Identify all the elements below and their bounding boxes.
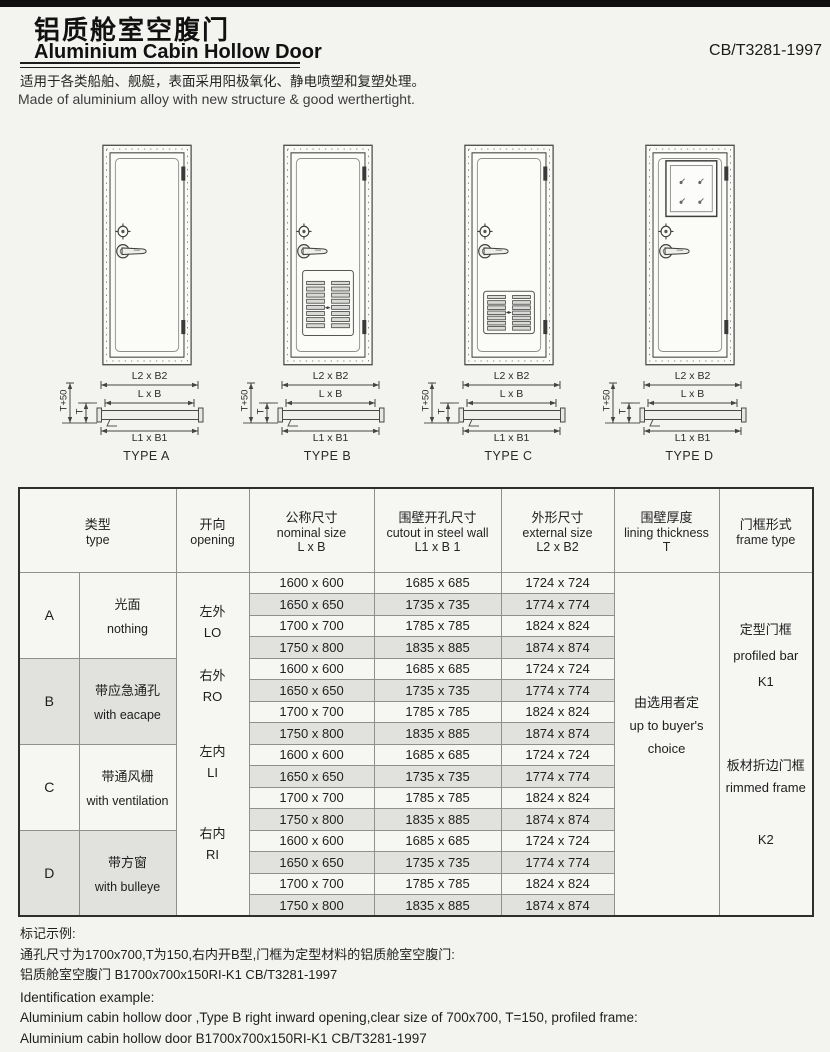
dim-label-t: T [75, 404, 86, 420]
dim-label-t: T [618, 404, 629, 420]
cutout-cell: 1685 x 685 [374, 744, 501, 766]
external-cell: 1724 x 724 [501, 744, 614, 766]
square-window-icon [666, 161, 717, 217]
top-rule-bar [0, 0, 830, 7]
dimension-diagram-a: L2 x B2 L x B L1 x B1 T+50 T [56, 373, 236, 445]
door-diagram-b [279, 142, 377, 368]
cutout-cell: 1735 x 735 [374, 594, 501, 616]
external-cell: 1724 x 724 [501, 830, 614, 852]
nominal-cell: 1700 x 700 [249, 701, 374, 723]
page-title-en: Aluminium Cabin Hollow Door [34, 41, 322, 64]
dim-label-nominal: L x B [101, 388, 198, 400]
external-cell: 1874 x 874 [501, 723, 614, 745]
desc-cell-d: 带方窗 with bulleye [79, 830, 176, 916]
nominal-cell: 1650 x 650 [249, 852, 374, 874]
figure-type-c: L2 x B2 L x B L1 x B1 T+50 T TYPE C [418, 142, 599, 463]
nominal-cell: 1650 x 650 [249, 594, 374, 616]
external-cell: 1774 x 774 [501, 680, 614, 702]
lining-cell: 由选用者定 up to buyer's choice [614, 572, 719, 916]
col-header-nominal: 公称尺寸 nominal size L x B [249, 488, 374, 572]
cutout-cell: 1685 x 685 [374, 572, 501, 594]
nominal-cell: 1650 x 650 [249, 766, 374, 788]
dim-label-t50: T+50 [421, 381, 432, 421]
mark-line-en-2: Aluminium cabin hollow door B1700x700x15… [20, 1029, 638, 1050]
door-diagram-c [460, 142, 558, 368]
nominal-cell: 1750 x 800 [249, 723, 374, 745]
col-header-cutout: 围壁开孔尺寸 cutout in steel wall L1 x B 1 [374, 488, 501, 572]
catalog-page: 铝质舱室空腹门 Aluminium Cabin Hollow Door CB/T… [0, 0, 830, 1052]
external-cell: 1874 x 874 [501, 809, 614, 831]
type-b-label: TYPE B [237, 449, 418, 463]
dim-label-nominal: L x B [644, 388, 741, 400]
opening-ro: 右外 RO [177, 665, 249, 707]
type-d-label: TYPE D [599, 449, 780, 463]
dim-label-cutout: L1 x B1 [644, 432, 741, 444]
nominal-cell: 1700 x 700 [249, 787, 374, 809]
standard-number: CB/T3281-1997 [709, 42, 822, 60]
dim-label-cutout: L1 x B1 [463, 432, 560, 444]
dim-label-external: L2 x B2 [644, 370, 741, 382]
dim-label-t50: T+50 [240, 381, 251, 421]
mark-line-zh-2: 铝质舱室空腹门 B1700x700x150RI-K1 CB/T3281-1997 [20, 965, 638, 986]
external-cell: 1824 x 824 [501, 787, 614, 809]
description-en: Made of aluminium alloy with new structu… [18, 91, 415, 107]
mark-line-zh-1: 通孔尺寸为1700x700,T为150,右内开B型,门框为定型材料的铝质舱室空腹… [20, 945, 638, 966]
external-cell: 1824 x 824 [501, 873, 614, 895]
nominal-cell: 1750 x 800 [249, 895, 374, 917]
external-cell: 1874 x 874 [501, 895, 614, 917]
door-figures: L2 x B2 L x B L1 x B1 T+50 T TYPE A L2 x… [56, 142, 780, 463]
type-c-label: TYPE C [418, 449, 599, 463]
mark-title-en: Identification example: [20, 988, 638, 1009]
cutout-cell: 1785 x 785 [374, 615, 501, 637]
external-cell: 1774 x 774 [501, 852, 614, 874]
mark-line-en-1: Aluminium cabin hollow door ,Type B righ… [20, 1008, 638, 1029]
cutout-cell: 1735 x 735 [374, 766, 501, 788]
dim-label-cutout: L1 x B1 [282, 432, 379, 444]
external-cell: 1774 x 774 [501, 766, 614, 788]
dim-label-external: L2 x B2 [101, 370, 198, 382]
external-cell: 1774 x 774 [501, 594, 614, 616]
nominal-cell: 1600 x 600 [249, 830, 374, 852]
external-cell: 1724 x 724 [501, 572, 614, 594]
nominal-cell: 1650 x 650 [249, 680, 374, 702]
type-cell-d: D [19, 830, 79, 916]
cutout-cell: 1785 x 785 [374, 701, 501, 723]
door-diagram-d [641, 142, 739, 368]
type-cell-b: B [19, 658, 79, 744]
cutout-cell: 1685 x 685 [374, 830, 501, 852]
dimension-diagram-d: L2 x B2 L x B L1 x B1 T+50 T [599, 373, 779, 445]
cutout-cell: 1835 x 885 [374, 723, 501, 745]
cutout-cell: 1685 x 685 [374, 658, 501, 680]
nominal-cell: 1750 x 800 [249, 637, 374, 659]
title-underline [20, 62, 300, 68]
desc-cell-a: 光面 nothing [79, 572, 176, 658]
nominal-cell: 1600 x 600 [249, 744, 374, 766]
header-row: 类型 type 开向 opening 公称尺寸 nominal size L x… [19, 488, 813, 572]
door-base-drawing [103, 145, 191, 364]
desc-cell-b: 带应急通孔 with eacape [79, 658, 176, 744]
type-cell-c: C [19, 744, 79, 830]
nominal-cell: 1750 x 800 [249, 809, 374, 831]
dim-label-nominal: L x B [463, 388, 560, 400]
cutout-cell: 1785 x 785 [374, 873, 501, 895]
external-cell: 1824 x 824 [501, 701, 614, 723]
col-header-external: 外形尺寸 external size L2 x B2 [501, 488, 614, 572]
dim-label-t: T [256, 404, 267, 420]
door-base-drawing [465, 145, 553, 364]
figure-type-d: L2 x B2 L x B L1 x B1 T+50 T TYPE D [599, 142, 780, 463]
col-header-lining: 围壁厚度 lining thickness T [614, 488, 719, 572]
frame-k2: 板材折边门框 rimmed frame K2 [720, 755, 813, 851]
cutout-cell: 1835 x 885 [374, 895, 501, 917]
frame-k1: 定型门框 profiled bar K1 [720, 617, 813, 695]
dimension-diagram-b: L2 x B2 L x B L1 x B1 T+50 T [237, 373, 417, 445]
opening-cell: 左外 LO 右外 RO 左内 LI 右内 RI [176, 572, 249, 916]
dim-label-external: L2 x B2 [282, 370, 379, 382]
desc-cell-c: 带通风栅 with ventilation [79, 744, 176, 830]
cutout-cell: 1785 x 785 [374, 787, 501, 809]
cutout-cell: 1835 x 885 [374, 637, 501, 659]
type-a-label: TYPE A [56, 449, 237, 463]
table-row: A 光面 nothing 左外 LO 右外 RO 左内 LI 右内 [19, 572, 813, 594]
cutout-cell: 1835 x 885 [374, 809, 501, 831]
dim-label-nominal: L x B [282, 388, 379, 400]
col-header-frame: 门框形式 frame type [719, 488, 813, 572]
dim-label-external: L2 x B2 [463, 370, 560, 382]
col-header-type: 类型 type [19, 488, 176, 572]
opening-lo: 左外 LO [177, 601, 249, 643]
figure-type-b: L2 x B2 L x B L1 x B1 T+50 T TYPE B [237, 142, 418, 463]
nominal-cell: 1600 x 600 [249, 658, 374, 680]
cutout-cell: 1735 x 735 [374, 680, 501, 702]
mark-title-zh: 标记示例: [20, 924, 638, 945]
dimension-diagram-c: L2 x B2 L x B L1 x B1 T+50 T [418, 373, 598, 445]
nominal-cell: 1600 x 600 [249, 572, 374, 594]
dim-label-t: T [437, 404, 448, 420]
door-diagram-a [98, 142, 196, 368]
frame-cell: 定型门框 profiled bar K1 板材折边门框 rimmed frame… [719, 572, 813, 916]
figure-type-a: L2 x B2 L x B L1 x B1 T+50 T TYPE A [56, 142, 237, 463]
dim-label-cutout: L1 x B1 [101, 432, 198, 444]
nominal-cell: 1700 x 700 [249, 873, 374, 895]
door-base-drawing [284, 145, 372, 364]
identification-example: 标记示例: 通孔尺寸为1700x700,T为150,右内开B型,门框为定型材料的… [20, 924, 638, 1049]
external-cell: 1824 x 824 [501, 615, 614, 637]
dim-label-t50: T+50 [59, 381, 70, 421]
external-cell: 1724 x 724 [501, 658, 614, 680]
type-cell-a: A [19, 572, 79, 658]
lining-note: 由选用者定 up to buyer's choice [615, 691, 719, 760]
cutout-cell: 1735 x 735 [374, 852, 501, 874]
external-cell: 1874 x 874 [501, 637, 614, 659]
opening-ri: 右内 RI [177, 823, 249, 865]
col-header-opening: 开向 opening [176, 488, 249, 572]
dim-label-t50: T+50 [602, 381, 613, 421]
opening-li: 左内 LI [177, 741, 249, 783]
spec-table: 类型 type 开向 opening 公称尺寸 nominal size L x… [18, 487, 814, 917]
description-zh: 适用于各类船舶、舰艇，表面采用阳极氧化、静电喷塑和复塑处理。 [20, 70, 425, 90]
nominal-cell: 1700 x 700 [249, 615, 374, 637]
